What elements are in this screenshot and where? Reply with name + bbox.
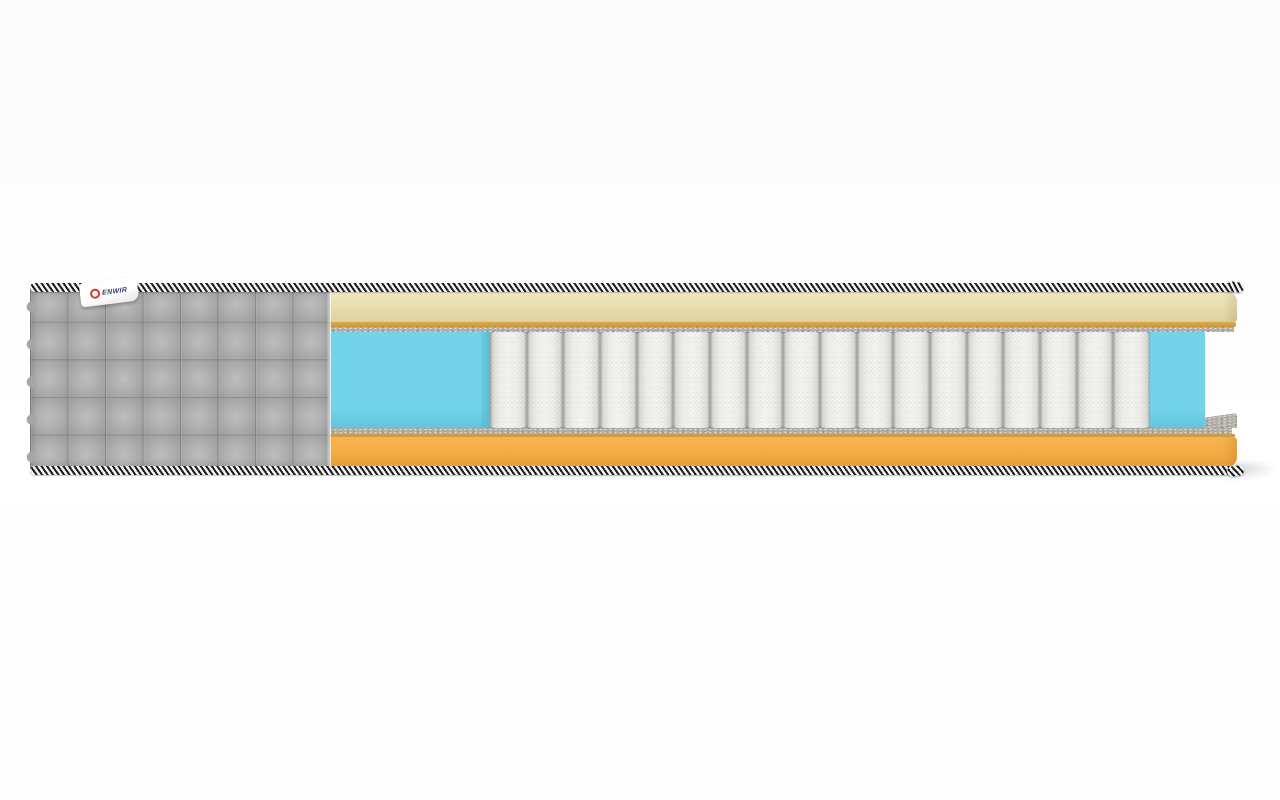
edge-foam-block-right: [1150, 332, 1205, 428]
pocket-spring: [967, 332, 1004, 428]
base-foam-end-face: [1223, 437, 1237, 467]
quilted-cover: [30, 285, 330, 473]
pocket-spring: [710, 332, 747, 428]
pocket-spring: [1077, 332, 1114, 428]
pocket-spring: [747, 332, 784, 428]
mattress-cutaway: ENWIR: [30, 283, 1237, 475]
pocket-spring: [527, 332, 564, 428]
binding-tape-bottom: [30, 466, 1237, 475]
product-photo-stage: ENWIR: [0, 0, 1280, 800]
pocket-spring: [1040, 332, 1077, 428]
right-end-recess: [1205, 332, 1237, 428]
pocket-springs: [490, 332, 1150, 428]
pocket-spring: [673, 332, 710, 428]
top-comfort-foam-layer: [328, 292, 1237, 322]
pocket-spring: [600, 332, 637, 428]
edge-foam-cut-face: [481, 332, 490, 429]
edge-foam-block-left: [328, 332, 490, 428]
cover-side-scallops: [25, 288, 35, 470]
spring-core-band: [328, 332, 1205, 428]
felt-deck-surface: [1205, 413, 1237, 428]
top-foam-end-face: [1223, 292, 1237, 322]
binding-tape-top: [30, 283, 1237, 292]
brand-tag-label: ENWIR: [102, 286, 127, 296]
cover-cut-edge: [326, 285, 331, 473]
pocket-spring: [637, 332, 674, 428]
pocket-spring: [820, 332, 857, 428]
pocket-spring: [1003, 332, 1040, 428]
base-foam-layer: [328, 437, 1237, 467]
pocket-spring: [783, 332, 820, 428]
pocket-spring: [563, 332, 600, 428]
pocket-spring: [1113, 332, 1150, 428]
pocket-spring: [490, 332, 527, 428]
pocket-spring: [893, 332, 930, 428]
pocket-spring: [857, 332, 894, 428]
red-ring-logo-icon: [90, 288, 101, 299]
pocket-spring: [930, 332, 967, 428]
